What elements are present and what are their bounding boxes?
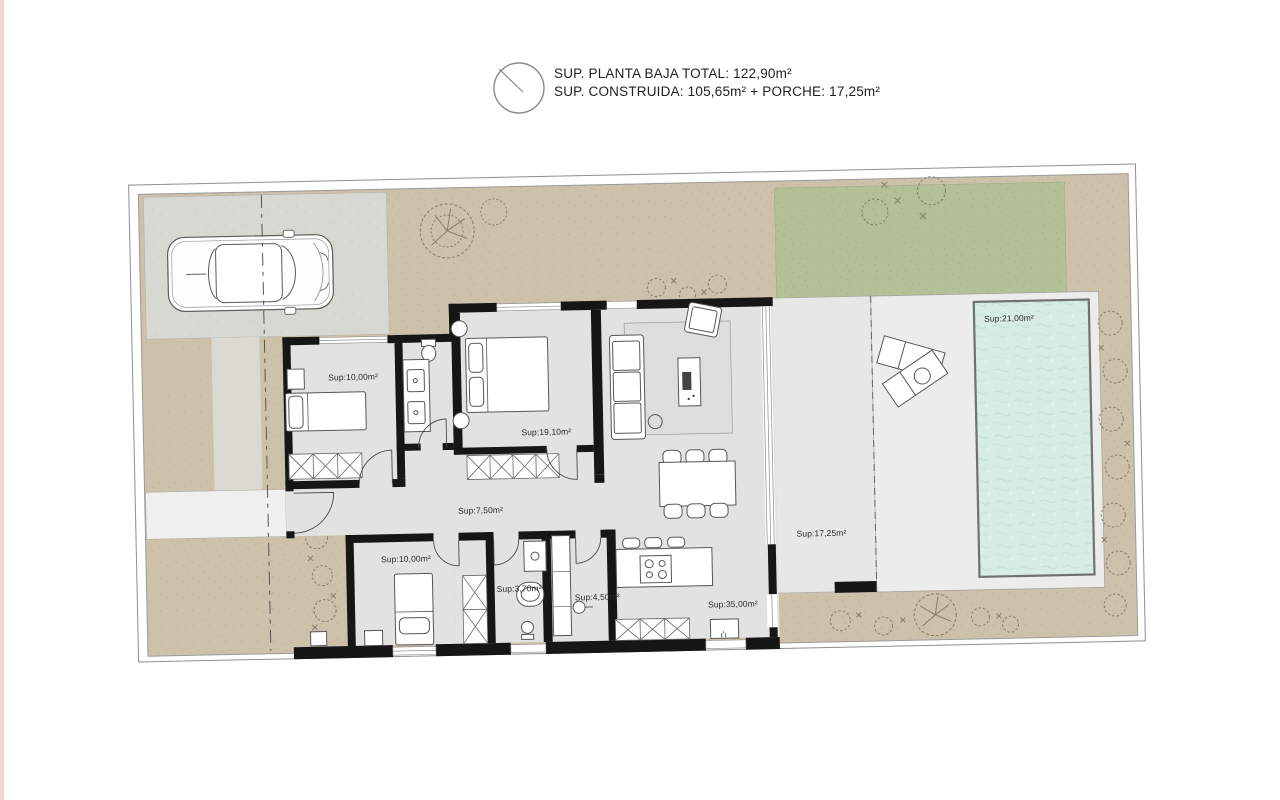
room-area-label-master-bedroom: Sup:19,10m² (521, 426, 571, 437)
room-area-label-bathroom-2: Sup:4,50m² (575, 591, 620, 602)
floor-plan-drawing (129, 164, 1147, 663)
wardrobe-bedroom-1 (289, 453, 363, 480)
entry-walkway (146, 489, 287, 539)
plan-header: SUP. PLANTA BAJA TOTAL: 122,90m² SUP. CO… (0, 0, 1280, 130)
sofa (609, 335, 645, 440)
porch-pillar (835, 581, 877, 593)
armchair (684, 302, 722, 338)
wardrobe-hallway (467, 454, 559, 480)
car-icon (167, 229, 334, 316)
room-area-label-pool: Sup:21,00m² (984, 313, 1034, 324)
room-area-label-porch: Sup:17,25m² (796, 528, 846, 539)
tv-unit (678, 358, 701, 406)
swimming-pool (974, 300, 1095, 577)
dining-set (659, 449, 736, 519)
plan-title-total-area: SUP. PLANTA BAJA TOTAL: 122,90m² (554, 66, 792, 81)
room-area-label-bedroom-2: Sup:10,00m² (381, 553, 431, 564)
room-area-label-hallway: Sup:7,50m² (458, 505, 503, 516)
site-plan: Sup:10,00m² Sup:19,10m² Sup:7,50m² Sup:1… (128, 163, 1146, 662)
room-area-label-bedroom-1: Sup:10,00m² (328, 371, 378, 382)
exterior-unit (311, 632, 327, 646)
north-compass-icon (492, 61, 548, 117)
room-area-label-bathroom-1: Sup:3,70m² (497, 583, 542, 594)
kitchen-sink-unit (710, 619, 738, 639)
room-area-label-kitchen-living: Sup:35,00m² (708, 599, 758, 610)
side-table (914, 368, 930, 384)
lawn (774, 182, 1066, 298)
plan-title-built-area: SUP. CONSTRUIDA: 105,65m² + PORCHE: 17,2… (554, 84, 880, 99)
porch-floor (771, 296, 877, 593)
kitchen-cabinets (615, 617, 738, 641)
wardrobe-bedroom-2 (462, 575, 487, 643)
